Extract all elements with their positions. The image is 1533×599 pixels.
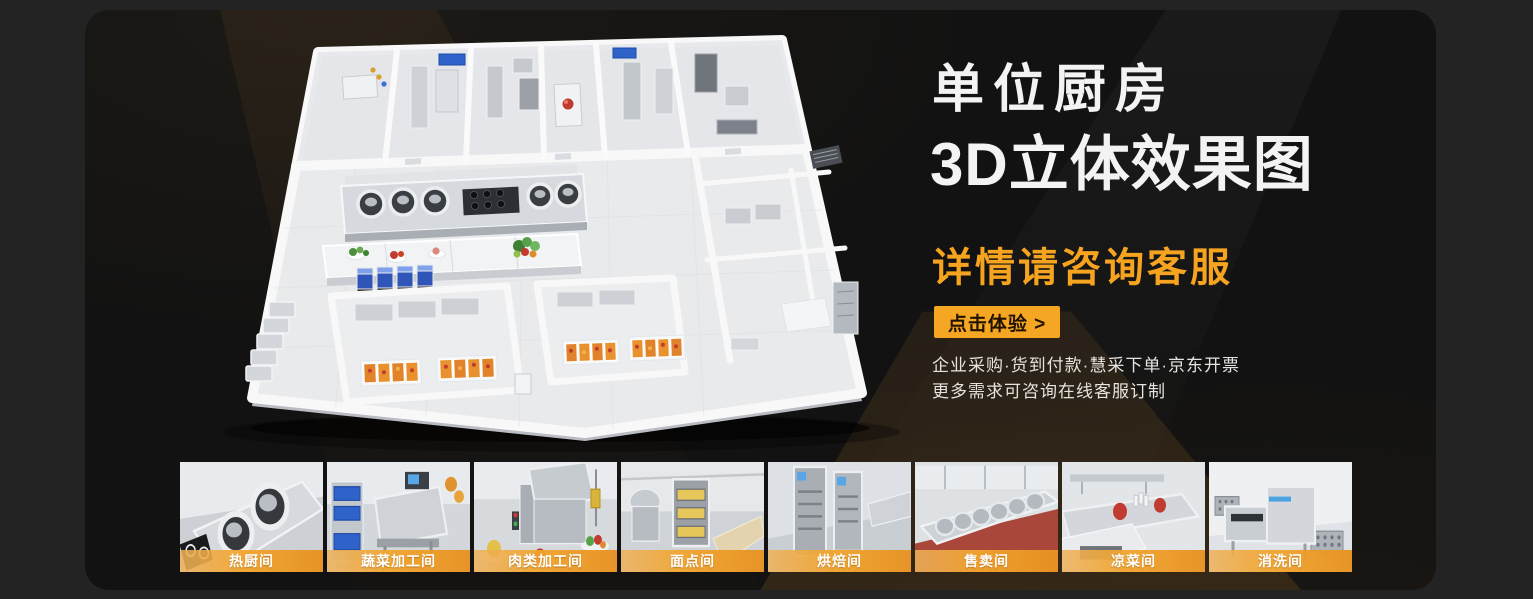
thumbnail-label: 蔬菜加工间 (361, 551, 436, 571)
kitchen-floorplan-3d-image (225, 8, 915, 453)
serving-room-left (331, 286, 521, 402)
description-line1: 企业采购·货到付款·慧采下单·京东开票 (932, 356, 1240, 375)
thumbnail-label: 热厨间 (229, 551, 274, 571)
thumbnail-label-band: 售卖间 (915, 550, 1058, 572)
thumbnail-label: 面点间 (670, 551, 715, 571)
banner: 单位厨房 3D立体效果图 详情请咨询客服 点击体验 > 企业采购·货到付款·慧采… (0, 0, 1533, 599)
thumbnail-label: 凉菜间 (1111, 551, 1156, 571)
subtitle: 详情请咨询客服 (932, 246, 1233, 290)
room-thumbnail-strip: 热厨间 蔬菜加工间 (180, 462, 1352, 572)
thumbnail-selling-room[interactable]: 售卖间 (915, 462, 1058, 572)
thumbnail-label-band: 消洗间 (1209, 550, 1352, 572)
isometric-kitchen-floorplan-icon (225, 8, 915, 453)
thumbnail-pastry-room[interactable]: 面点间 (621, 462, 764, 572)
thumbnail-washing-room[interactable]: 消洗间 (1209, 462, 1352, 572)
thumbnail-label-band: 烘焙间 (768, 550, 911, 572)
thumbnail-label-band: 面点间 (621, 550, 764, 572)
thumbnail-label-band: 蔬菜加工间 (327, 550, 470, 572)
cta-button[interactable]: 点击体验 > (934, 306, 1060, 338)
cta-label: 点击体验 > (948, 309, 1046, 336)
headline-line1: 单位厨房 (932, 62, 1176, 119)
description-line2: 更多需求可咨询在线客服订制 (932, 382, 1166, 401)
thumbnail-label-band: 热厨间 (180, 550, 323, 572)
thumbnail-meat-processing[interactable]: 肉类加工间 (474, 462, 617, 572)
thumbnail-label-band: 肉类加工间 (474, 550, 617, 572)
thumbnail-label: 烘焙间 (817, 551, 862, 571)
cooking-line (341, 164, 587, 242)
thumbnail-cold-dish-room[interactable]: 凉菜间 (1062, 462, 1205, 572)
thumbnail-label: 售卖间 (964, 551, 1009, 571)
thumbnail-label-band: 凉菜间 (1062, 550, 1205, 572)
thumbnail-label: 肉类加工间 (508, 551, 583, 571)
description-text: 企业采购·货到付款·慧采下单·京东开票 更多需求可咨询在线客服订制 (932, 353, 1240, 405)
headline-line2: 3D立体效果图 (930, 132, 1314, 198)
thumbnail-hot-kitchen[interactable]: 热厨间 (180, 462, 323, 572)
thumbnail-baking-room[interactable]: 烘焙间 (768, 462, 911, 572)
thumbnail-label: 消洗间 (1258, 551, 1303, 571)
thumbnail-vegetable-processing[interactable]: 蔬菜加工间 (327, 462, 470, 572)
